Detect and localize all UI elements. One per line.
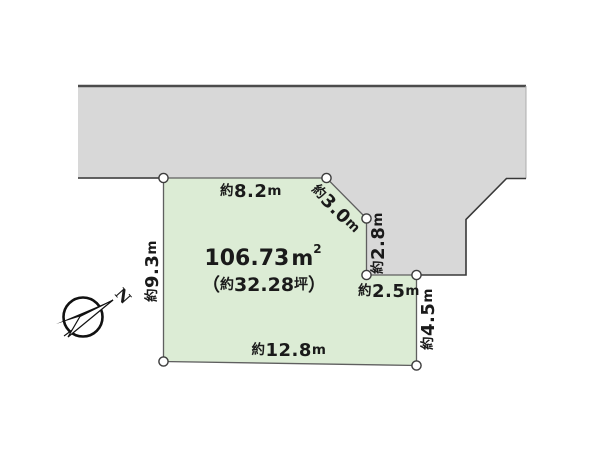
edge-length-left-prefix: 約	[143, 288, 160, 302]
edge-length-top: 約8.2m	[220, 181, 282, 202]
plot-area-sqm-value: 106.73	[204, 246, 289, 271]
edge-length-right-upper-value: 2.8	[368, 227, 389, 260]
vertex-marker-top-left	[159, 173, 168, 182]
edge-length-right-lower-unit: m	[420, 288, 436, 303]
plot-svg: N 106.73m2 （約32.28坪） 約8.2m 約3.0m 約2.8m 約…	[0, 0, 600, 450]
edge-length-step-unit: m	[405, 283, 420, 299]
edge-length-step-prefix: 約	[358, 282, 372, 299]
plot-area-sqm-unit: m	[291, 246, 313, 270]
compass-needle-light	[68, 300, 113, 337]
edge-length-bottom-prefix: 約	[252, 341, 266, 358]
edge-length-step: 約2.5m	[358, 281, 420, 302]
edge-length-top-value: 8.2	[234, 181, 267, 202]
edge-length-right-upper-unit: m	[370, 212, 386, 227]
plot-area-tsubo-close: ）	[308, 275, 326, 296]
edge-length-left-value: 9.3	[142, 255, 163, 288]
plot-area-tsubo-unit: 坪	[294, 277, 308, 293]
compass-icon: N	[56, 284, 135, 337]
edge-length-bottom: 約12.8m	[252, 340, 327, 361]
edge-length-right-lower-prefix: 約	[419, 336, 436, 350]
edge-length-left: 約9.3m	[142, 240, 163, 302]
vertex-marker-bottom-left	[159, 357, 168, 366]
edge-length-left-unit: m	[144, 240, 160, 255]
plot-area-tsubo-value: 32.28	[234, 274, 294, 296]
edge-length-bottom-unit: m	[312, 342, 327, 358]
edge-length-step-value: 2.5	[372, 281, 405, 302]
plot-area-sqm-exponent: 2	[313, 242, 321, 256]
edge-length-top-prefix: 約	[220, 182, 234, 199]
plot-area-sqm: 106.73m2	[204, 242, 321, 271]
plot-area-tsubo: （約32.28坪）	[202, 274, 326, 296]
plot-area-tsubo-open: （	[202, 275, 220, 296]
edge-length-bottom-value: 12.8	[266, 340, 312, 361]
vertex-marker-top-right	[322, 173, 331, 182]
edge-length-right-lower-value: 4.5	[418, 303, 439, 336]
vertex-marker-step-right	[412, 270, 421, 279]
vertex-marker-bottom-right	[412, 361, 421, 370]
north-label: N	[111, 284, 135, 308]
edge-length-right-upper: 約2.8m	[368, 212, 389, 274]
plot-area-tsubo-prefix: 約	[220, 276, 234, 293]
edge-length-top-unit: m	[267, 183, 282, 199]
edge-length-right-lower: 約4.5m	[418, 288, 439, 350]
edge-length-right-upper-prefix: 約	[369, 260, 386, 274]
land-plot-diagram: N 106.73m2 （約32.28坪） 約8.2m 約3.0m 約2.8m 約…	[0, 0, 600, 450]
